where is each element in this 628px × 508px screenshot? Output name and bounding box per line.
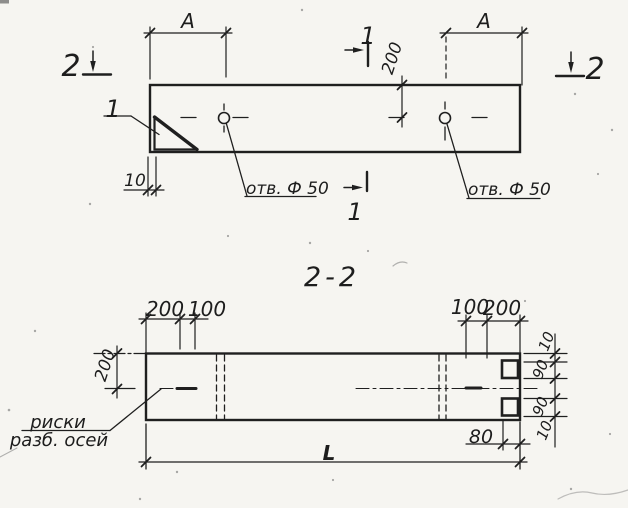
hidden-hole-left	[217, 355, 225, 419]
section-mark-2-right	[556, 52, 584, 76]
dim-a-left	[144, 27, 232, 79]
drawing-sheet: А А 200 10 отв. Ф 50 отв. Ф 50 1 1 1 2 2…	[0, 0, 628, 508]
dim-200-plan	[398, 76, 407, 127]
axis-marks-label-line2: разб. осей	[9, 432, 109, 450]
dim-a-left-label: А	[168, 11, 208, 31]
notch-upper	[502, 361, 518, 379]
section1-bottom-label: 1	[346, 200, 364, 224]
dim-length-label: L	[314, 443, 344, 463]
detail-callout-label: 1	[104, 97, 122, 121]
dim-a-right	[440, 27, 528, 85]
dim-a-right-label: А	[464, 11, 504, 31]
dim-80-label: 80	[466, 428, 496, 447]
section2-left-label: 2	[57, 52, 85, 82]
dim-top-left-100-label: 100	[187, 299, 227, 319]
corner-triangle-detail	[155, 117, 198, 150]
section2-right-label: 2	[581, 55, 609, 85]
notch-lower	[502, 399, 518, 416]
section-mark-1-bottom	[344, 172, 367, 191]
section-beam-outline	[146, 354, 520, 421]
plan-beam-outline	[150, 85, 520, 152]
hole-left	[181, 104, 248, 132]
section-mark-2-left	[83, 51, 111, 75]
hole-label-right: отв. Ф 50	[468, 182, 542, 199]
section1-top-label: 1	[359, 24, 377, 48]
dim-top-right-200-label: 200	[482, 298, 522, 318]
section-title: 2-2	[297, 264, 367, 291]
hidden-hole-right	[439, 355, 446, 419]
plan-view	[83, 27, 584, 199]
hole-right	[389, 102, 487, 140]
dim-10-plan-label: 10	[120, 173, 150, 190]
hole-label-left: отв. Ф 50	[246, 181, 318, 198]
dim-top-left-200-label: 200	[145, 299, 185, 319]
dim-top-right	[458, 315, 528, 358]
